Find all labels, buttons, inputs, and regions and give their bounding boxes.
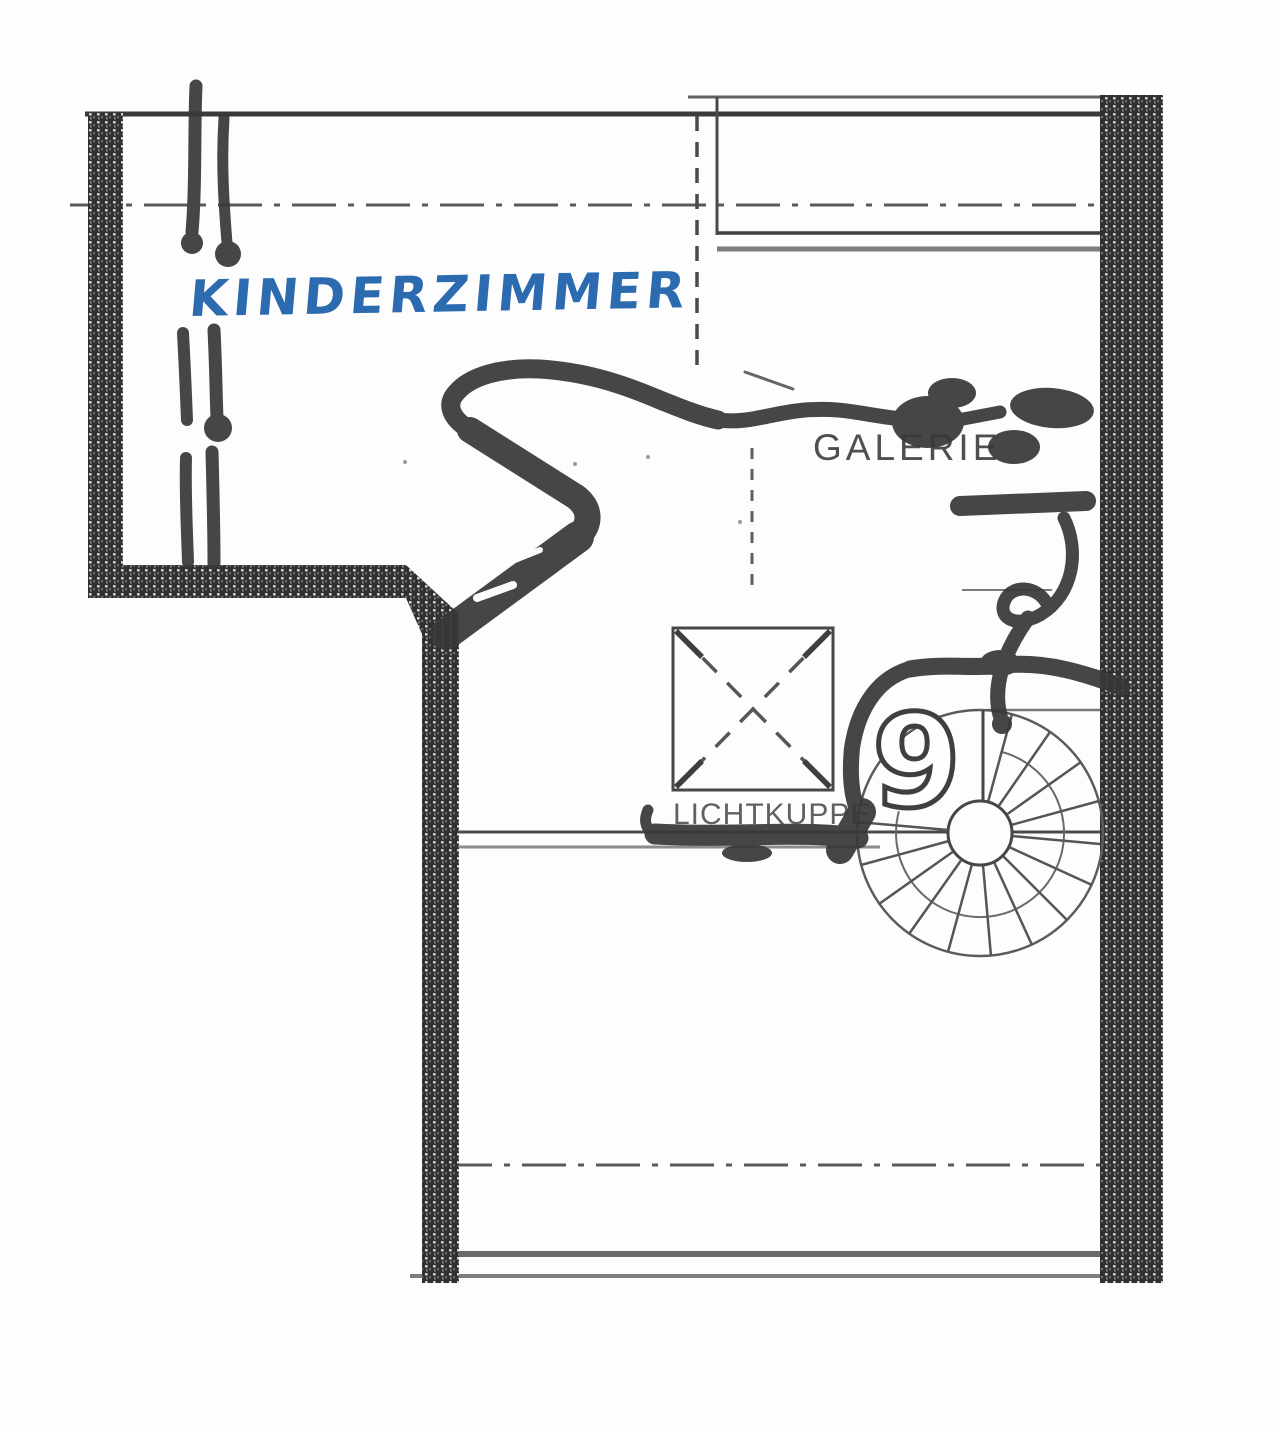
skylight-symbol — [673, 628, 833, 790]
marker-s-scribble — [446, 369, 1000, 634]
pen-stray-line — [745, 372, 793, 389]
chamfer-and-lower-left-wall — [406, 565, 459, 1283]
floor-plan-drawing: GALERIE LICHTKUPPE 9 KINDERZIMMER — [0, 0, 1280, 1432]
kinderzimmer-label: KINDERZIMMER — [187, 260, 692, 328]
marker-annotations — [181, 86, 1122, 862]
middle-horizontal-wall — [88, 565, 406, 598]
stair-number: 9 — [872, 688, 961, 837]
left-wall — [88, 113, 123, 597]
floor-plan-scan: GALERIE LICHTKUPPE 9 KINDERZIMMER — [0, 0, 1280, 1432]
